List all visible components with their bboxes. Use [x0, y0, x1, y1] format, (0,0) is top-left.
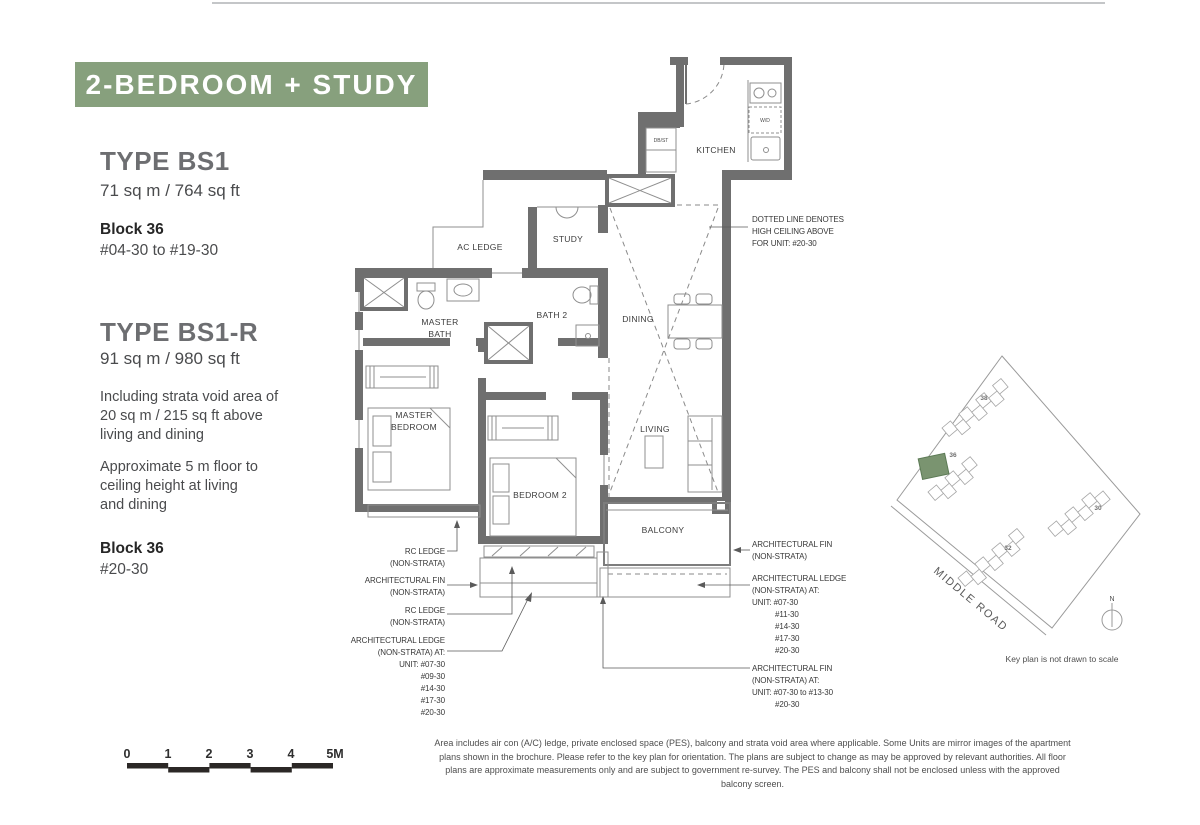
- room-label-balcony: BALCONY: [642, 525, 685, 535]
- keyplan-highlighted-unit: [918, 453, 949, 479]
- annotation-line: RC LEDGE: [405, 606, 445, 615]
- annotation-line: #20-30: [775, 646, 800, 655]
- annotation-line: #17-30: [775, 634, 800, 643]
- floorplan-drawing: KITCHEN DB/ST W/D STUDY AC LEDGE MASTER …: [330, 50, 850, 730]
- note-line: and dining: [100, 496, 258, 515]
- note-line: Including strata void area of: [100, 388, 278, 407]
- keyplan-cluster-32: [958, 529, 1029, 592]
- annotation-line: ARCHITECTURAL LEDGE: [752, 574, 846, 583]
- scale-number: 5M: [326, 747, 343, 761]
- type2-note2: Approximate 5 m floor to ceiling height …: [100, 458, 258, 515]
- annotation-line: (NON-STRATA): [390, 618, 445, 627]
- keyplan-cluster-30: [1048, 486, 1110, 542]
- annotation-line: UNIT: #07-30: [399, 660, 446, 669]
- room-label-master-bath: BATH: [428, 329, 451, 339]
- annotation-line: #11-30: [775, 610, 799, 619]
- annotation-line: #20-30: [775, 700, 800, 709]
- scale-number: 4: [288, 747, 295, 761]
- annotation-line: (NON-STRATA) AT:: [378, 648, 445, 657]
- keyplan-block-38: 38: [980, 395, 988, 402]
- scale-bar: 0 1 2 3 4 5M: [110, 738, 360, 783]
- annotation-line: #14-30: [775, 622, 800, 631]
- compass-n-label: N: [1109, 596, 1114, 603]
- entry-door: [686, 62, 724, 104]
- annotations-left: RC LEDGE (NON-STRATA) ARCHITECTURAL FIN …: [351, 520, 532, 717]
- annotation-line: (NON-STRATA) AT:: [752, 676, 819, 685]
- room-label-master-bath: MASTER: [421, 317, 458, 327]
- keyplan-block-30: 30: [1094, 505, 1102, 512]
- room-label-dining: DINING: [622, 314, 654, 324]
- annotation-line: DOTTED LINE DENOTES: [752, 215, 844, 224]
- brochure-page: 2-BEDROOM + STUDY TYPE BS1 71 sq m / 764…: [0, 0, 1200, 825]
- keyplan: 38 36 30 32 MIDDLE ROAD N Key plan is no…: [875, 345, 1165, 675]
- room-labels: KITCHEN DB/ST W/D STUDY AC LEDGE MASTER …: [391, 118, 770, 535]
- type2-block: Block 36: [100, 540, 164, 558]
- annotation-line: HIGH CEILING ABOVE: [752, 227, 834, 236]
- type2-name: TYPE BS1-R: [100, 317, 258, 348]
- annotation-line: #14-30: [421, 684, 446, 693]
- room-label-dbst: DB/ST: [654, 138, 669, 144]
- keyplan-caption: Key plan is not drawn to scale: [1006, 654, 1119, 664]
- note-line: ceiling height at living: [100, 477, 258, 496]
- keyplan-cluster-38: [942, 379, 1013, 442]
- annotation-line: (NON-STRATA) AT:: [752, 586, 819, 595]
- annotation-line: ARCHITECTURAL FIN: [752, 664, 833, 673]
- room-label-kitchen: KITCHEN: [696, 145, 735, 155]
- room-label-master-bedroom: MASTER: [395, 410, 432, 420]
- annotation-line: (NON-STRATA): [390, 559, 445, 568]
- room-label-wd: W/D: [760, 118, 770, 124]
- annotation-line: #20-30: [421, 708, 446, 717]
- type2-units: #20-30: [100, 561, 148, 579]
- type2-area: 91 sq m / 980 sq ft: [100, 349, 240, 369]
- annotation-line: (NON-STRATA): [390, 588, 445, 597]
- note-line: 20 sq m / 215 sq ft above: [100, 407, 278, 426]
- disclaimer-text: Area includes air con (A/C) ledge, priva…: [430, 737, 1075, 791]
- type1-block: Block 36: [100, 221, 164, 239]
- note-line: living and dining: [100, 426, 278, 445]
- scale-number: 3: [247, 747, 254, 761]
- keyplan-block-36: 36: [949, 452, 957, 459]
- keyplan-block-32: 32: [1004, 545, 1012, 552]
- window-slots: [355, 268, 725, 510]
- scale-number: 0: [124, 747, 131, 761]
- annotation-line: FOR UNIT: #20-30: [752, 239, 817, 248]
- type1-area: 71 sq m / 764 sq ft: [100, 181, 240, 201]
- type2-note1: Including strata void area of 20 sq m / …: [100, 388, 278, 445]
- room-label-bedroom2: BEDROOM 2: [513, 490, 567, 500]
- room-label-master-bedroom: BEDROOM: [391, 422, 437, 432]
- annotation-line: ARCHITECTURAL FIN: [752, 540, 833, 549]
- top-divider-rule: [212, 2, 1105, 4]
- annotation-line: #09-30: [421, 672, 446, 681]
- annotation-line: UNIT: #07-30 to #13-30: [752, 688, 834, 697]
- type1-name: TYPE BS1: [100, 146, 230, 177]
- room-label-ac-ledge: AC LEDGE: [457, 242, 502, 252]
- room-label-living: LIVING: [640, 424, 670, 434]
- annotation-line: #17-30: [421, 696, 446, 705]
- living-dining-furniture: [645, 294, 722, 492]
- annotation-line: RC LEDGE: [405, 547, 445, 556]
- annotation-line: (NON-STRATA): [752, 552, 807, 561]
- scale-number: 2: [206, 747, 213, 761]
- floorplan-walls: [355, 57, 792, 544]
- annotation-line: ARCHITECTURAL FIN: [365, 576, 446, 585]
- compass-icon: N: [1102, 596, 1122, 630]
- scale-number: 1: [165, 747, 172, 761]
- note-line: Approximate 5 m floor to: [100, 458, 258, 477]
- high-ceiling-dashed-lines: [609, 205, 720, 497]
- type1-units: #04-30 to #19-30: [100, 242, 218, 260]
- room-label-study: STUDY: [553, 234, 583, 244]
- annotation-line: ARCHITECTURAL LEDGE: [351, 636, 445, 645]
- annotation-line: UNIT: #07-30: [752, 598, 799, 607]
- room-label-bath2: BATH 2: [537, 310, 568, 320]
- scale-bar-segments: [127, 763, 333, 773]
